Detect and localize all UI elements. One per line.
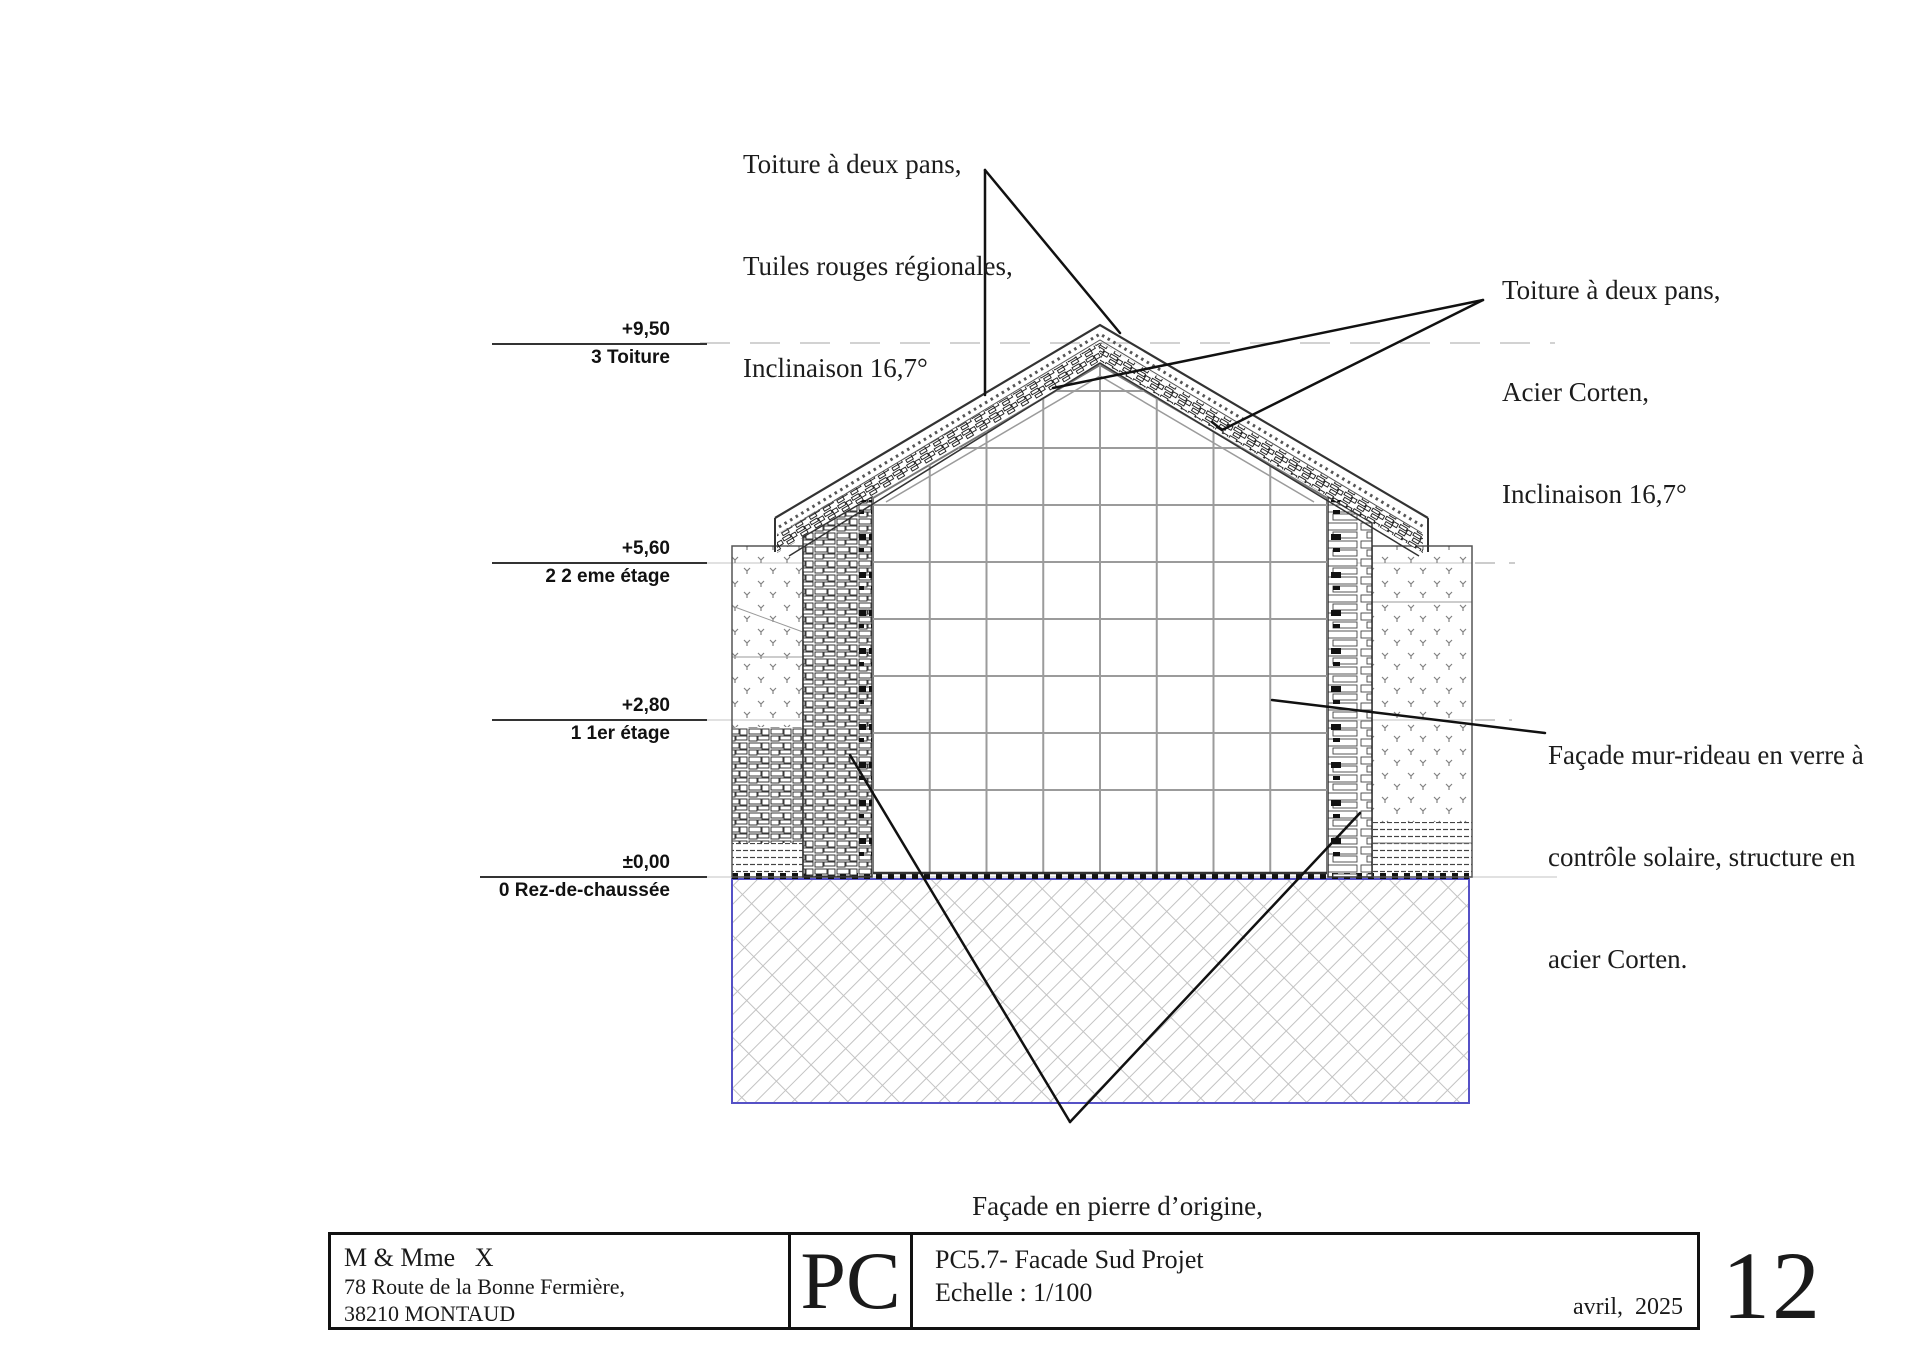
- annotation-line: contrôle solaire, structure en: [1548, 840, 1864, 874]
- client-address-line2: 38210 MONTAUD: [344, 1300, 788, 1327]
- right-stone-pier: [1327, 497, 1372, 877]
- annotation-line: acier Corten.: [1548, 942, 1864, 976]
- title-block-drawing-cell: PC5.7- Facade Sud Projet Echelle : 1/100…: [913, 1235, 1697, 1327]
- annotation-line: Toiture à deux pans,: [1502, 273, 1721, 307]
- right-wing-wall: [1372, 546, 1472, 877]
- drawing-reference: PC5.7- Facade Sud Projet: [935, 1243, 1697, 1276]
- annotation-roof-corten: Toiture à deux pans, Acier Corten, Incli…: [1502, 205, 1721, 579]
- annotation-line: Toiture à deux pans,: [743, 147, 1013, 181]
- drawing-date: avril, 2025: [1573, 1294, 1683, 1321]
- annotation-line: Inclinaison 16,7°: [1502, 477, 1721, 511]
- level-name-ground: 0 Rez-de-chaussée: [420, 880, 670, 902]
- level-elevation-roof: +9,50: [420, 319, 670, 341]
- page-number: 12: [1722, 1238, 1882, 1334]
- drawing-sheet: Toiture à deux pans, Tuiles rouges régio…: [0, 0, 1920, 1357]
- ground-hatch: [732, 876, 1469, 1103]
- level-name-floor1: 1 1er étage: [420, 723, 670, 745]
- level-label-underlines: [480, 344, 707, 877]
- title-block: M & Mme X 78 Route de la Bonne Fermière,…: [328, 1232, 1700, 1330]
- client-name: M & Mme X: [344, 1243, 788, 1273]
- annotation-line: Tuiles rouges régionales,: [743, 249, 1013, 283]
- level-name-floor2: 2 2 eme étage: [420, 566, 670, 588]
- annotation-roof-tiles: Toiture à deux pans, Tuiles rouges régio…: [743, 79, 1013, 453]
- annotation-line: Façade en pierre d’origine,: [935, 1189, 1300, 1223]
- level-elevation-floor2: +5,60: [420, 538, 670, 560]
- client-address-line1: 78 Route de la Bonne Fermière,: [344, 1273, 788, 1300]
- annotation-line: Acier Corten,: [1502, 375, 1721, 409]
- annotation-line: Façade mur-rideau en verre à: [1548, 738, 1864, 772]
- level-elevation-floor1: +2,80: [420, 695, 670, 717]
- left-stone-pier: [803, 497, 873, 877]
- left-wing-wall: [732, 546, 803, 877]
- title-block-client-cell: M & Mme X 78 Route de la Bonne Fermière,…: [331, 1235, 788, 1327]
- level-elevation-ground: ±0,00: [420, 852, 670, 874]
- level-name-roof: 3 Toiture: [420, 347, 670, 369]
- leader-corten-a: [1053, 300, 1483, 388]
- leader-corten-b: [1212, 300, 1483, 430]
- annotation-line: Inclinaison 16,7°: [743, 351, 1013, 385]
- annotation-curtain-wall: Façade mur-rideau en verre à contrôle so…: [1548, 670, 1864, 1044]
- permit-logo: PC: [788, 1235, 913, 1327]
